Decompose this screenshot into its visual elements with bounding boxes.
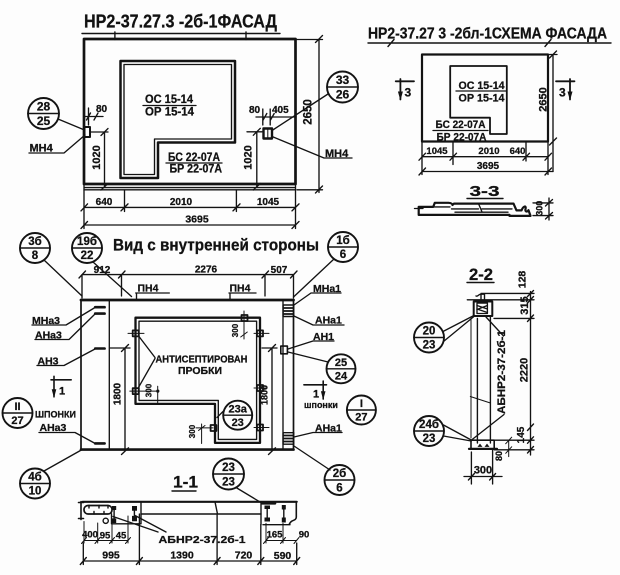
- svg-text:2б: 2б: [333, 468, 347, 480]
- svg-text:507: 507: [271, 265, 288, 276]
- svg-text:300: 300: [188, 424, 197, 438]
- svg-text:3б: 3б: [28, 236, 42, 248]
- svg-text:1: 1: [313, 389, 319, 401]
- svg-text:28: 28: [37, 100, 51, 114]
- svg-text:НР2-37.27.3 -2б-1ФАСАД: НР2-37.27.3 -2б-1ФАСАД: [84, 12, 277, 32]
- svg-text:300: 300: [474, 465, 492, 477]
- svg-text:26: 26: [336, 88, 350, 102]
- svg-text:1б: 1б: [336, 235, 350, 247]
- svg-text:23: 23: [423, 433, 436, 445]
- svg-text:4б: 4б: [28, 472, 42, 484]
- svg-text:22: 22: [81, 250, 94, 262]
- svg-text:3: 3: [405, 86, 412, 100]
- svg-text:19б: 19б: [77, 236, 97, 248]
- svg-text:315: 315: [519, 296, 531, 314]
- svg-text:23а: 23а: [229, 404, 248, 416]
- svg-text:1390: 1390: [170, 550, 194, 562]
- svg-text:23: 23: [423, 340, 436, 352]
- svg-text:1020: 1020: [91, 145, 103, 169]
- svg-text:405: 405: [272, 105, 289, 116]
- svg-text:3-3: 3-3: [470, 183, 500, 200]
- svg-text:23: 23: [232, 417, 244, 429]
- svg-text:ПРОБКИ: ПРОБКИ: [178, 366, 222, 377]
- svg-text:300: 300: [145, 383, 154, 397]
- svg-text:2010: 2010: [478, 146, 499, 157]
- svg-text:1-1: 1-1: [173, 473, 198, 492]
- svg-text:27: 27: [11, 415, 23, 427]
- svg-text:АБНР2-37.2б-1: АБНР2-37.2б-1: [159, 534, 246, 546]
- svg-text:33: 33: [336, 73, 350, 87]
- svg-text:8: 8: [32, 250, 39, 262]
- svg-text:АНТИСЕПТИРОВАН: АНТИСЕПТИРОВАН: [156, 355, 248, 366]
- svg-text:1800: 1800: [113, 382, 124, 405]
- svg-text:2650: 2650: [303, 99, 315, 125]
- svg-text:24: 24: [335, 371, 348, 383]
- svg-text:3695: 3695: [185, 213, 209, 225]
- svg-text:24б: 24б: [419, 419, 439, 431]
- svg-text:145: 145: [516, 426, 527, 443]
- svg-text:1: 1: [59, 386, 65, 398]
- svg-text:БС 22-07А: БС 22-07А: [436, 119, 486, 131]
- svg-text:912: 912: [94, 265, 111, 276]
- svg-text:590: 590: [274, 550, 292, 562]
- svg-text:27: 27: [355, 412, 367, 424]
- svg-text:23: 23: [222, 477, 235, 489]
- svg-text:165: 165: [267, 530, 284, 541]
- svg-text:3: 3: [559, 86, 566, 100]
- svg-text:95: 95: [100, 531, 111, 542]
- svg-text:45: 45: [116, 531, 127, 542]
- svg-text:6: 6: [340, 249, 346, 261]
- svg-text:Вид с внутренней стороны: Вид с внутренней стороны: [113, 237, 319, 255]
- svg-text:1800: 1800: [260, 385, 270, 405]
- svg-text:80: 80: [494, 451, 504, 461]
- svg-text:6: 6: [336, 483, 342, 495]
- svg-text:10: 10: [29, 486, 42, 498]
- svg-text:2010: 2010: [170, 197, 193, 208]
- svg-text:ОР 15-14: ОР 15-14: [145, 105, 194, 119]
- svg-text:128: 128: [517, 271, 529, 289]
- svg-text:720: 720: [235, 550, 253, 562]
- svg-text:3695: 3695: [477, 161, 500, 172]
- svg-text:НР2-37.27 3 -2бл-1СХЕМА ФАСАДА: НР2-37.27 3 -2бл-1СХЕМА ФАСАДА: [368, 26, 607, 43]
- svg-text:300: 300: [231, 323, 240, 337]
- svg-text:25: 25: [335, 357, 347, 369]
- svg-text:25: 25: [37, 114, 51, 128]
- svg-text:23: 23: [222, 462, 235, 474]
- svg-text:шпонки: шпонки: [304, 400, 338, 410]
- svg-text:БР 22-07А: БР 22-07А: [437, 132, 487, 144]
- svg-text:90: 90: [299, 530, 310, 541]
- svg-text:80: 80: [249, 105, 261, 116]
- svg-text:АБНР2-37-2б-1: АБНР2-37-2б-1: [496, 330, 508, 414]
- svg-text:640: 640: [510, 146, 526, 157]
- svg-text:БР 22-07А: БР 22-07А: [170, 162, 223, 176]
- svg-text:2-2: 2-2: [469, 265, 493, 284]
- svg-text:2650: 2650: [538, 87, 550, 111]
- svg-text:I: I: [360, 398, 363, 410]
- svg-text:2220: 2220: [519, 358, 531, 382]
- svg-text:640: 640: [96, 197, 113, 208]
- svg-text:1045: 1045: [257, 197, 280, 208]
- svg-text:ОС 15-14: ОС 15-14: [459, 80, 506, 92]
- svg-text:II: II: [14, 401, 20, 413]
- svg-text:ШПОНКИ: ШПОНКИ: [35, 410, 76, 420]
- svg-text:ОР 15-14: ОР 15-14: [459, 93, 506, 105]
- svg-text:1020: 1020: [243, 145, 255, 169]
- svg-text:1045: 1045: [426, 146, 448, 157]
- svg-text:995: 995: [102, 550, 120, 562]
- svg-text:2276: 2276: [195, 264, 218, 275]
- svg-text:20: 20: [423, 326, 436, 338]
- svg-text:300: 300: [535, 201, 545, 216]
